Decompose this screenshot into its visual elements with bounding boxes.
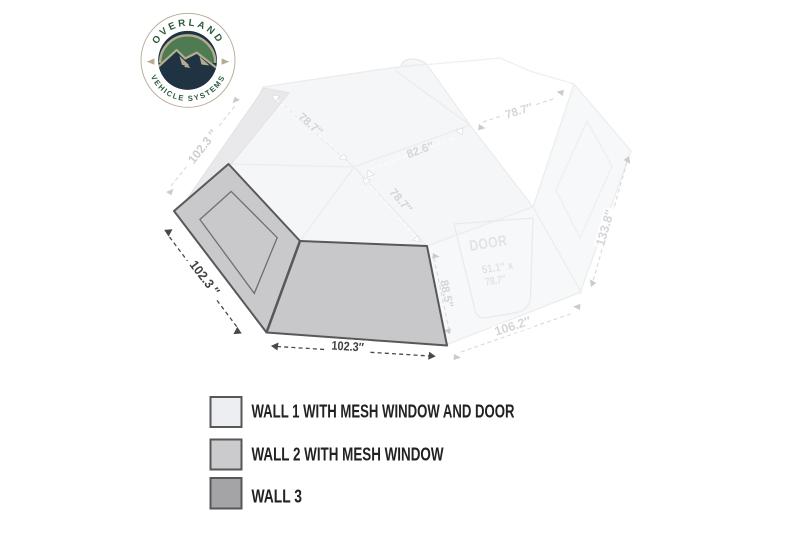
svg-text:WALL 3: WALL 3 — [252, 487, 303, 507]
svg-text:WALL 2 WITH MESH WINDOW: WALL 2 WITH MESH WINDOW — [252, 445, 444, 465]
svg-text:78.7″: 78.7″ — [504, 102, 535, 122]
svg-text:WALL 1 WITH MESH WINDOW AND DO: WALL 1 WITH MESH WINDOW AND DOOR — [252, 402, 515, 422]
svg-text:102.3″: 102.3″ — [331, 338, 364, 354]
